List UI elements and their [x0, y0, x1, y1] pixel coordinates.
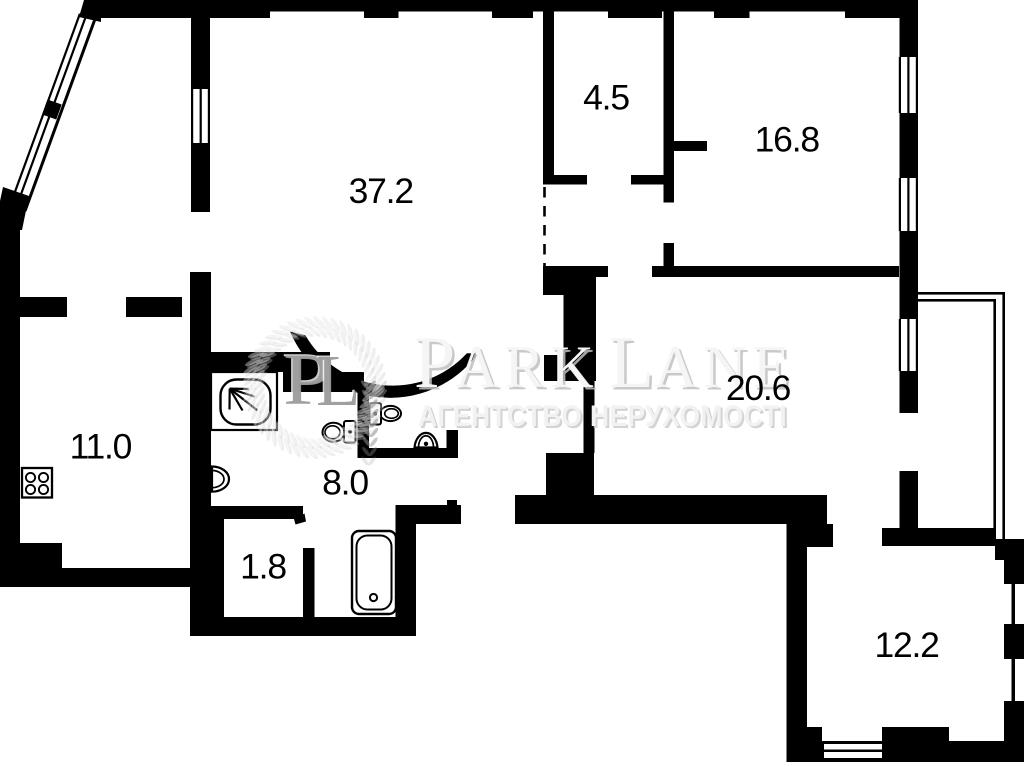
svg-text:L: L	[316, 340, 361, 421]
svg-text:4.5: 4.5	[583, 77, 629, 117]
svg-text:1.8: 1.8	[240, 547, 286, 587]
svg-text:20.6: 20.6	[726, 368, 791, 408]
svg-text:12.2: 12.2	[874, 625, 938, 665]
svg-text:16.8: 16.8	[755, 119, 820, 159]
svg-text:37.2: 37.2	[349, 171, 413, 211]
svg-text:11.0: 11.0	[70, 426, 132, 466]
svg-text:8.0: 8.0	[322, 463, 368, 503]
